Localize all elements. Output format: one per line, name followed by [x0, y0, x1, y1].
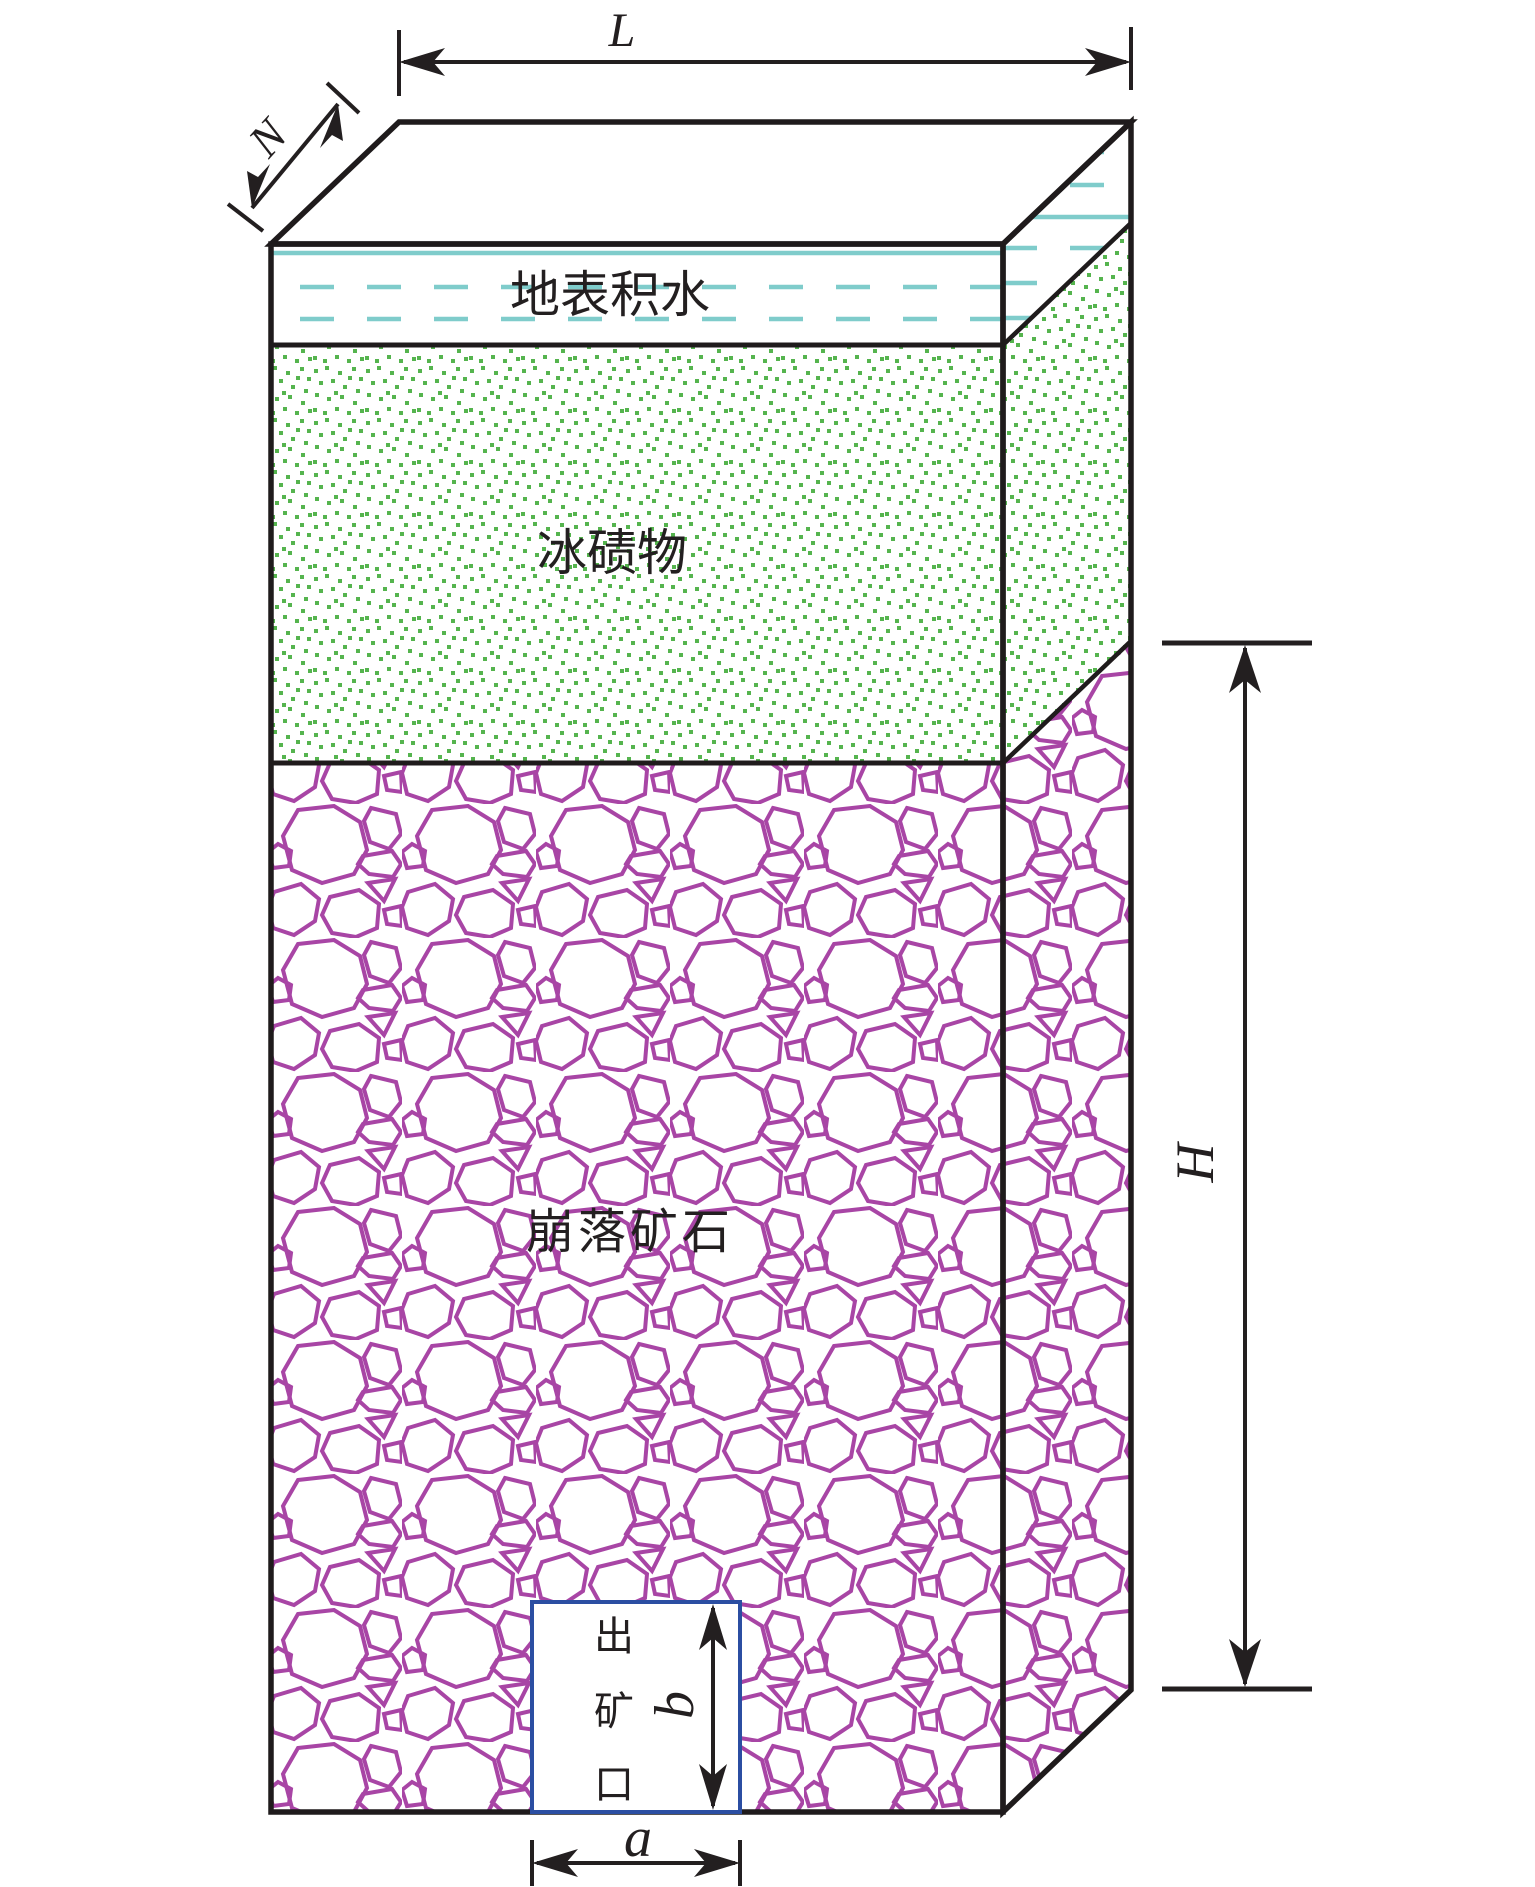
- outlet-label-char: 口: [594, 1762, 634, 1807]
- dimension-N-label: N: [238, 107, 299, 166]
- layer-label-caved-ore: 崩落矿石: [526, 1206, 734, 1259]
- dimension-H-label: H: [1165, 1141, 1225, 1184]
- dimension-a-label: a: [624, 1807, 652, 1869]
- outlet-label-char: 矿: [594, 1689, 634, 1734]
- outlet-label-char: 出: [594, 1614, 634, 1659]
- layer-label-surface-water: 地表积水: [510, 267, 710, 323]
- dimension-a: a: [532, 1807, 740, 1886]
- dimension-L: L: [399, 4, 1131, 96]
- tick-near: [228, 204, 263, 231]
- figure-canvas: 出 矿 口 b 地表积水 冰碛物 崩落矿石 L N: [0, 0, 1535, 1887]
- mining-block-diagram: 出 矿 口 b 地表积水 冰碛物 崩落矿石 L N: [0, 0, 1535, 1887]
- dimension-b-label: b: [644, 1691, 706, 1719]
- side-face-caved-ore: [1003, 641, 1131, 1812]
- layer-label-moraine: 冰碛物: [537, 525, 687, 581]
- ore-outlet: 出 矿 口 b: [532, 1602, 740, 1812]
- top-face: [271, 122, 1131, 244]
- dimension-H: H: [1162, 643, 1312, 1689]
- dimension-L-label: L: [608, 4, 636, 57]
